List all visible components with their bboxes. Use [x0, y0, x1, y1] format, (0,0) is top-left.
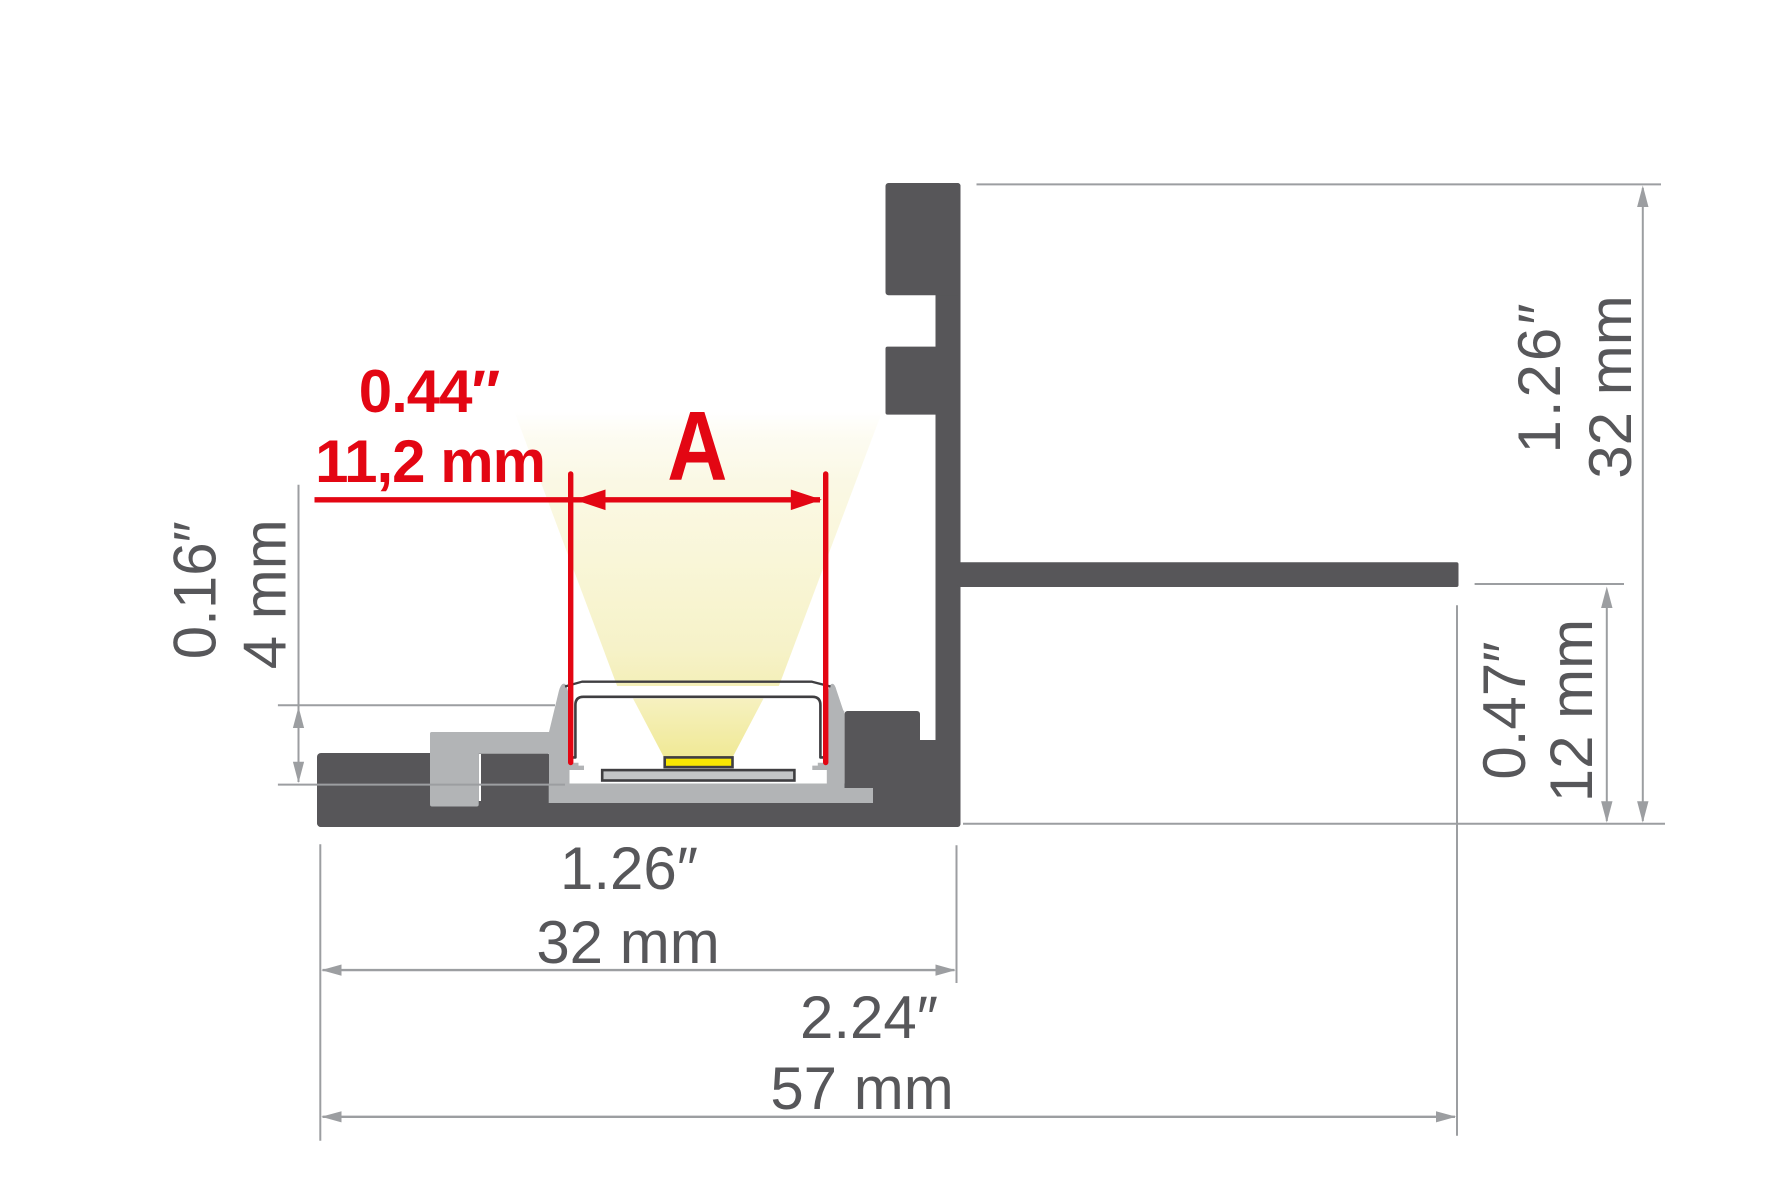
- svg-text:57 mm: 57 mm: [770, 1055, 953, 1122]
- svg-text:32 mm: 32 mm: [536, 909, 719, 976]
- svg-text:1.26″: 1.26″: [1506, 300, 1573, 453]
- svg-text:A: A: [667, 393, 727, 502]
- svg-text:2.24″: 2.24″: [800, 984, 938, 1051]
- svg-text:32 mm: 32 mm: [1577, 295, 1644, 478]
- svg-text:1.26″: 1.26″: [560, 835, 698, 902]
- svg-text:11,2 mm: 11,2 mm: [315, 428, 545, 495]
- svg-text:0.44″: 0.44″: [359, 358, 500, 425]
- svg-text:0.47″: 0.47″: [1471, 642, 1538, 780]
- svg-text:12 mm: 12 mm: [1538, 619, 1605, 802]
- svg-text:4 mm: 4 mm: [232, 519, 299, 669]
- svg-text:0.16″: 0.16″: [162, 521, 229, 659]
